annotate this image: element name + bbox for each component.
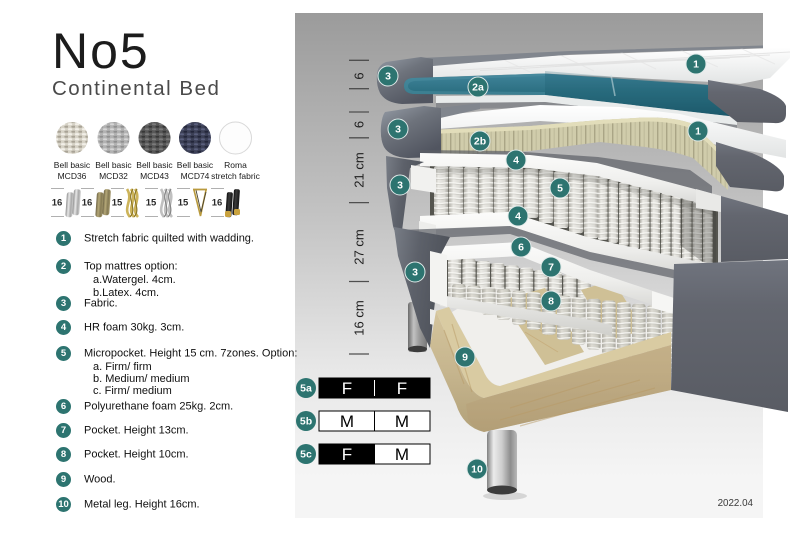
- svg-text:M: M: [395, 445, 409, 464]
- svg-text:27 cm: 27 cm: [351, 229, 366, 264]
- svg-text:6: 6: [351, 72, 366, 79]
- svg-text:21 cm: 21 cm: [351, 152, 366, 187]
- svg-text:3: 3: [397, 180, 403, 192]
- svg-text:F: F: [342, 379, 352, 398]
- svg-text:1: 1: [695, 126, 701, 138]
- svg-text:5c: 5c: [300, 449, 312, 461]
- svg-text:6: 6: [518, 242, 524, 254]
- svg-text:F: F: [397, 379, 407, 398]
- svg-text:3: 3: [412, 267, 418, 279]
- svg-text:6: 6: [351, 121, 366, 128]
- svg-text:2022.04: 2022.04: [718, 498, 754, 509]
- svg-text:10: 10: [471, 464, 483, 476]
- svg-text:5: 5: [557, 183, 563, 195]
- svg-text:2a: 2a: [472, 82, 484, 94]
- svg-text:5b: 5b: [300, 416, 312, 428]
- svg-text:4: 4: [515, 211, 521, 223]
- svg-text:3: 3: [395, 124, 401, 136]
- svg-text:16 cm: 16 cm: [351, 300, 366, 335]
- svg-text:M: M: [395, 412, 409, 431]
- svg-text:M: M: [340, 412, 354, 431]
- svg-text:F: F: [342, 445, 352, 464]
- svg-text:5a: 5a: [300, 383, 312, 395]
- svg-text:8: 8: [548, 296, 554, 308]
- svg-text:2b: 2b: [474, 136, 486, 148]
- svg-text:9: 9: [462, 352, 468, 364]
- svg-text:7: 7: [548, 262, 554, 274]
- svg-text:3: 3: [385, 71, 391, 83]
- svg-text:1: 1: [693, 59, 699, 71]
- svg-text:4: 4: [513, 155, 519, 167]
